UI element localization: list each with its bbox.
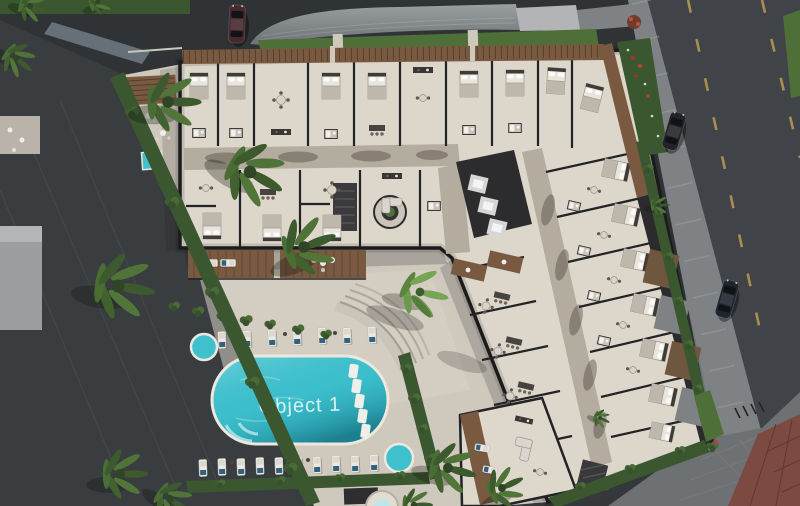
flowering-tree: [627, 15, 641, 29]
neighbor-wall-band: [516, 5, 580, 31]
sun-lounger: [268, 329, 278, 347]
sun-lounger: [218, 458, 228, 476]
sun-lounger: [313, 456, 323, 474]
sun-lounger: [256, 457, 266, 475]
balcony-table: [321, 268, 325, 272]
bathroom: [428, 202, 441, 211]
side-table: [283, 332, 287, 336]
sun-lounger: [351, 455, 361, 473]
left-patio: [0, 116, 40, 154]
pool: Object 1: [212, 356, 388, 444]
bed: [506, 70, 524, 96]
bed: [546, 67, 566, 94]
kitchen-counter: [382, 173, 402, 179]
sun-lounger: [218, 331, 228, 349]
bathroom: [325, 130, 338, 139]
terrace-gap: [330, 46, 335, 63]
flowering-tree-bloom: [629, 17, 633, 21]
sun-lounger: [370, 454, 380, 472]
sun-lounger: [343, 327, 353, 345]
patio-table: [160, 130, 166, 136]
patio-table: [20, 138, 25, 143]
flowering-tree-bloom: [636, 22, 640, 26]
bed: [203, 213, 221, 239]
bed: [263, 215, 281, 241]
patio-chair: [167, 136, 170, 139]
kitchen-counter: [413, 67, 433, 73]
bed: [190, 73, 208, 99]
sun-lounger: [368, 326, 378, 344]
hot-tub-northwest: [191, 334, 217, 360]
bed: [368, 73, 386, 99]
left-building-parapet: [0, 226, 42, 242]
patio-chair: [155, 137, 158, 140]
sun-lounger: [237, 458, 247, 476]
sun-lounger: [332, 455, 342, 473]
terrace-chair: [466, 268, 471, 273]
patio-table: [8, 128, 13, 133]
hot-tub-southeast: [385, 444, 413, 472]
side-table: [306, 458, 310, 462]
sun-lounger: [199, 459, 209, 477]
side-table: [230, 460, 234, 464]
kitchen-counter: [271, 129, 291, 135]
kitchen-island: [369, 125, 385, 136]
bed: [227, 73, 245, 99]
sun-lounger: [275, 457, 285, 475]
patio-chair: [12, 148, 16, 152]
terrace-chair: [502, 260, 507, 265]
bathroom: [193, 129, 206, 138]
bed: [322, 73, 340, 99]
balcony-lounger: [220, 259, 236, 267]
bathroom: [463, 126, 476, 135]
terrace-gap: [470, 44, 475, 61]
site-render: Object 1: [0, 0, 800, 506]
side-table: [333, 331, 337, 335]
kitchen-island: [260, 189, 276, 200]
bathroom: [509, 124, 522, 133]
bed: [460, 71, 478, 97]
bathroom: [230, 129, 243, 138]
